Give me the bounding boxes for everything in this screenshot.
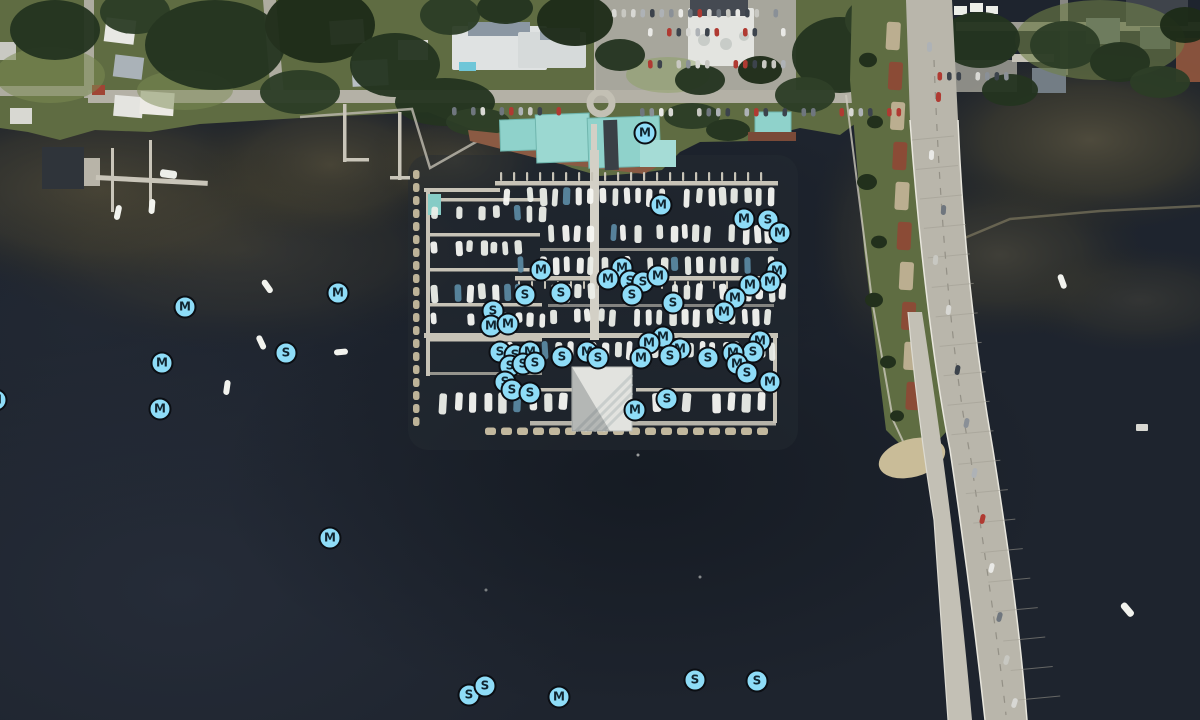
map-marker-m[interactable]: M [759,271,782,294]
map-marker-m[interactable]: M [548,686,571,709]
map-marker-m[interactable]: M [497,313,520,336]
map-marker-s[interactable]: S [514,284,537,307]
map-marker-m[interactable]: M [647,265,670,288]
map-marker-m[interactable]: M [151,352,174,375]
map-marker-s[interactable]: S [587,347,610,370]
map-marker-s[interactable]: S [659,345,682,368]
map-marker-m[interactable]: M [174,296,197,319]
map-marker-s[interactable]: S [519,382,542,405]
map-marker-s[interactable]: S [736,362,759,385]
map-marker-s[interactable]: S [474,675,497,698]
map-canvas[interactable]: MMMMSMMMSSMSSMMSMMMMSSMSSSSMMMMMSMMMMMSM… [0,0,1200,720]
map-marker-s[interactable]: S [551,346,574,369]
map-marker-m[interactable]: M [630,347,653,370]
map-marker-s[interactable]: S [621,284,644,307]
map-marker-s[interactable]: S [684,669,707,692]
map-marker-m[interactable]: M [624,399,647,422]
map-marker-m[interactable]: M [650,194,673,217]
map-marker-s[interactable]: S [524,352,547,375]
map-marker-m[interactable]: M [713,301,736,324]
map-marker-s[interactable]: S [275,342,298,365]
marker-layer: MMMMSMMMSSMSSMMSMMMMSSMSSSSMMMMMSMMMMMSM… [0,0,1200,720]
map-marker-s[interactable]: S [746,670,769,693]
map-marker-s[interactable]: S [697,347,720,370]
map-marker-m[interactable]: M [769,222,792,245]
map-marker-s[interactable]: S [656,388,679,411]
map-marker-s[interactable]: S [662,292,685,315]
map-marker-m[interactable]: M [733,208,756,231]
map-marker-s[interactable]: S [550,282,573,305]
map-marker-m[interactable]: M [530,259,553,282]
map-marker-m[interactable]: M [634,122,657,145]
map-marker-m[interactable]: M [327,282,350,305]
map-marker-m[interactable]: M [149,398,172,421]
map-marker-m[interactable]: M [597,268,620,291]
map-marker-m[interactable]: M [319,527,342,550]
map-marker-m[interactable]: M [759,371,782,394]
map-marker-m[interactable]: M [0,389,8,412]
